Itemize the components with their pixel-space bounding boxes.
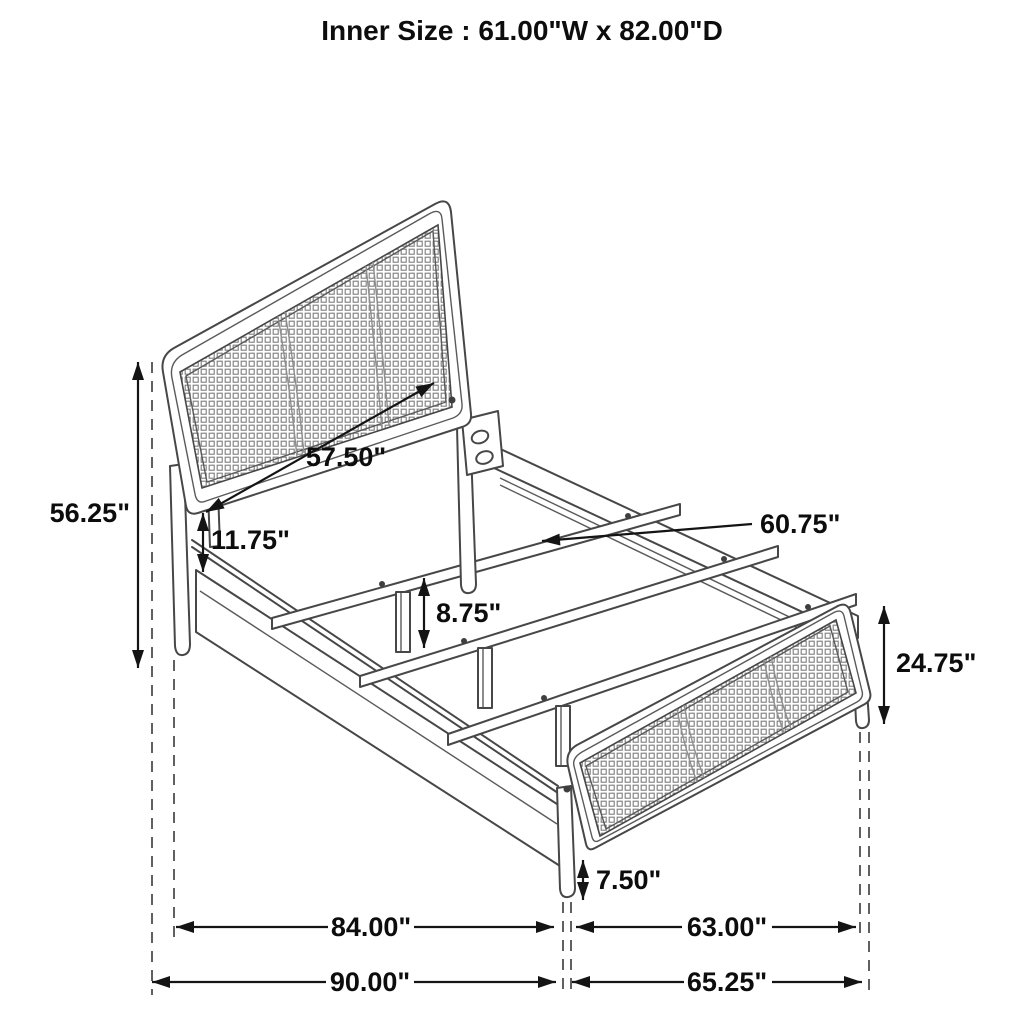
- dim-label-footboard-overall-width: 65.25": [687, 967, 767, 997]
- bed-frame-diagram: Inner Size : 61.00"W x 82.00"D: [0, 0, 1024, 1024]
- dim-label-center-leg-height: 8.75": [436, 598, 501, 628]
- dim-label-footboard-leg-height: 7.50": [596, 865, 661, 895]
- dim-headboard-height: 56.25": [50, 362, 138, 668]
- slat-support-leg-1: [396, 592, 410, 652]
- dim-rail-span-length: 84.00": [176, 912, 554, 942]
- dim-overall-length: 90.00": [152, 967, 556, 997]
- slat-support-leg-2: [478, 648, 492, 708]
- footboard-bolt: [564, 786, 571, 793]
- dim-label-headboard-width: 57.50": [306, 442, 386, 472]
- dim-label-footboard-inner-width: 63.00": [687, 912, 767, 942]
- dim-label-slat-length: 60.75": [760, 509, 840, 539]
- dim-footboard-inner-width: 63.00": [576, 912, 856, 942]
- page-title: Inner Size : 61.00"W x 82.00"D: [321, 15, 723, 46]
- dim-label-footboard-height: 24.75": [896, 648, 976, 678]
- dim-footboard-height: 24.75": [884, 606, 976, 724]
- footboard-left-leg: [557, 786, 575, 897]
- dim-label-rail-span-length: 84.00": [331, 912, 411, 942]
- diagram-page: Inner Size : 61.00"W x 82.00"D: [0, 0, 1024, 1024]
- slat-2: [360, 546, 778, 687]
- dim-footboard-leg-height: 7.50": [583, 860, 661, 900]
- headboard-bolt: [449, 397, 456, 404]
- dim-label-side-rail-height: 11.75": [211, 525, 290, 555]
- dim-label-overall-length: 90.00": [330, 967, 410, 997]
- dim-label-headboard-height: 56.25": [50, 498, 130, 528]
- dim-footboard-overall-width: 65.25": [572, 967, 862, 997]
